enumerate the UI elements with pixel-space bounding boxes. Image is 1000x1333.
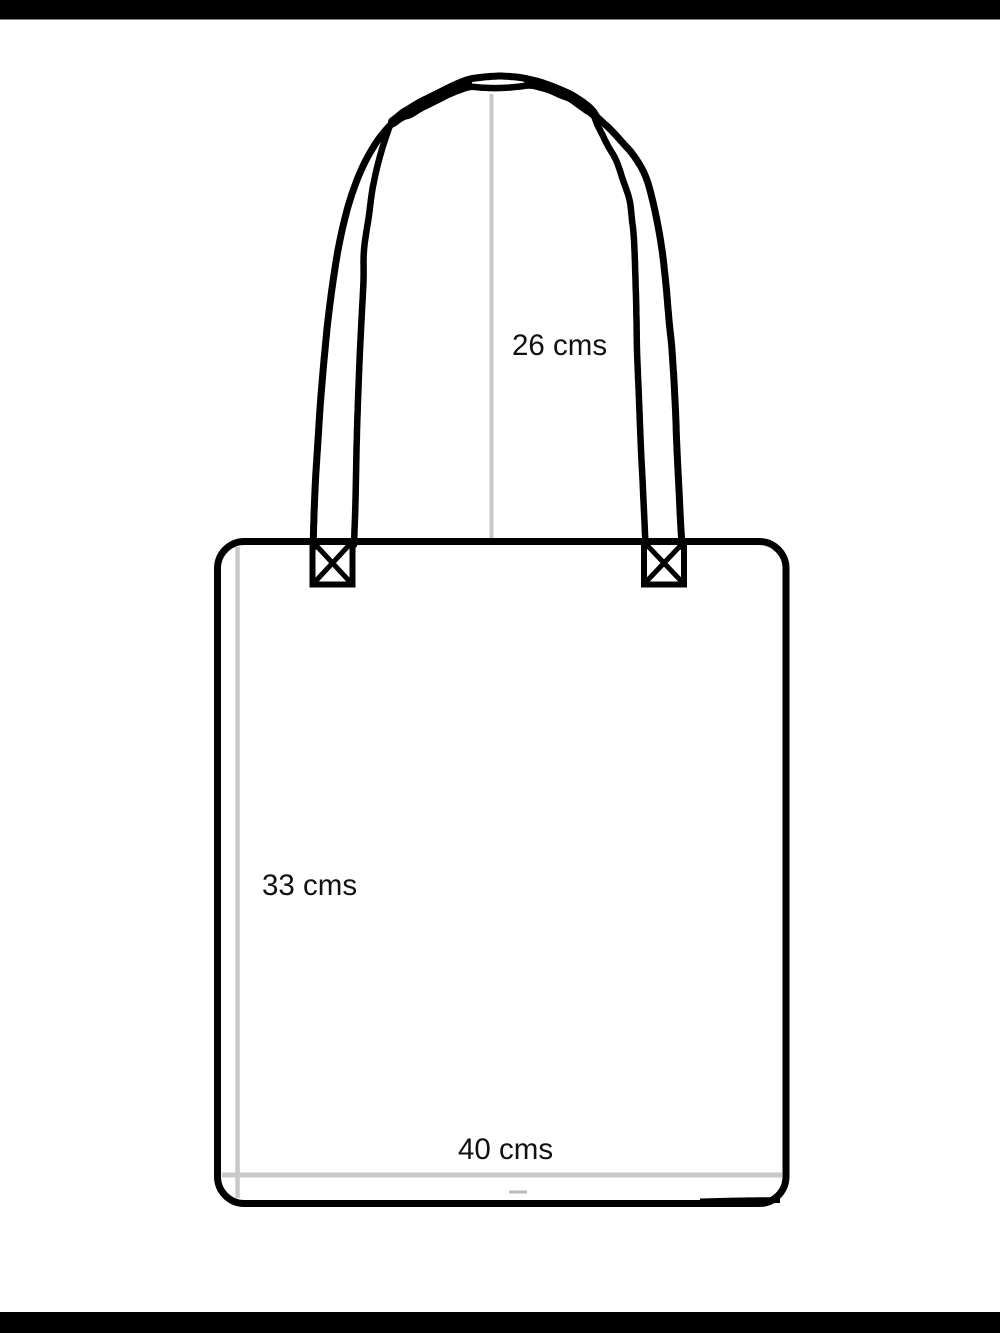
svg-text:33 cms: 33 cms — [262, 869, 357, 902]
svg-text:26 cms: 26 cms — [512, 329, 607, 362]
svg-text:40 cms: 40 cms — [458, 1133, 553, 1166]
